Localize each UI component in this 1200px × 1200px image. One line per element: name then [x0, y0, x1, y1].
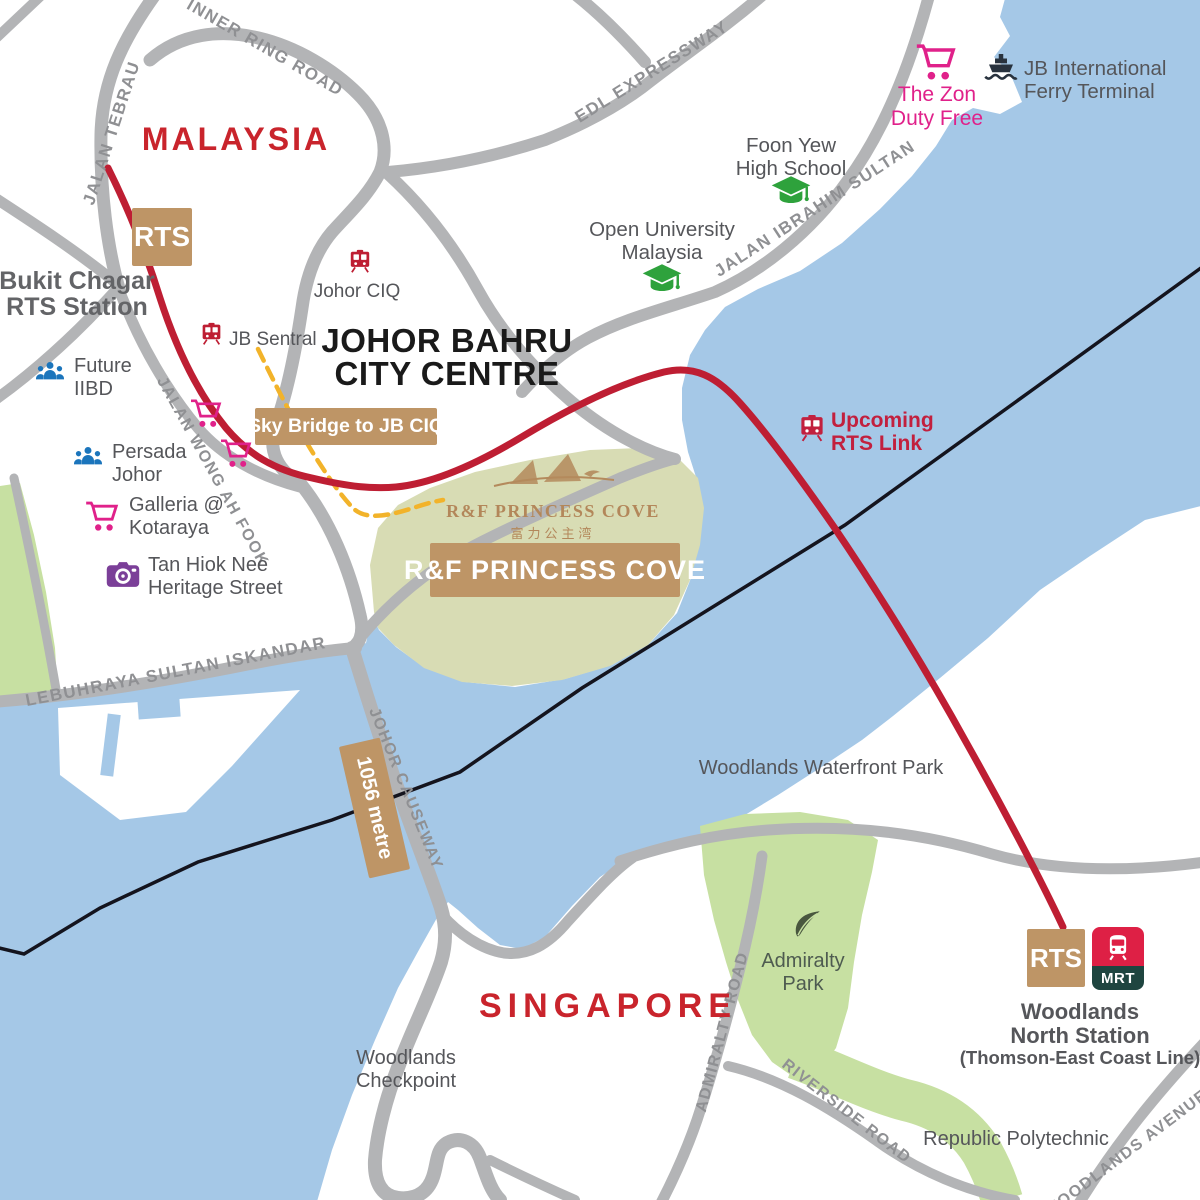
- shopping-cart-icon: [218, 436, 254, 472]
- tan-hiok-nee-label: Tan Hiok Nee Heritage Street: [148, 554, 283, 599]
- upcoming-rts-line2: RTS Link: [831, 432, 934, 455]
- graduation-cap-icon: [770, 174, 812, 210]
- malaysia-label: MALAYSIA: [142, 121, 330, 158]
- admiralty-park-line2: Park: [761, 973, 844, 996]
- future-iibd-line2: IIBD: [74, 378, 132, 401]
- open-university-line2: Malaysia: [589, 241, 735, 264]
- galleria-line1: Galleria @: [129, 494, 224, 517]
- rf-logo-name: R&F PRINCESS COVE: [446, 501, 660, 522]
- people-icon: [34, 358, 66, 390]
- galleria-kotaraya-label: Galleria @ Kotaraya: [129, 494, 224, 539]
- the-zon-line2: Duty Free: [891, 107, 983, 131]
- republic-polytechnic-label: Republic Polytechnic: [923, 1128, 1109, 1151]
- tan-hiok-nee-line1: Tan Hiok Nee: [148, 554, 283, 577]
- woodlands-north-line1: Woodlands: [960, 1000, 1200, 1024]
- tan-hiok-nee-line2: Heritage Street: [148, 577, 283, 600]
- admiralty-park-label: Admiralty Park: [761, 950, 844, 995]
- persada-line1: Persada: [112, 441, 187, 464]
- jb-sentral-label: JB Sentral: [229, 329, 317, 350]
- train-icon: [797, 414, 827, 444]
- open-university-line1: Open University: [589, 218, 735, 241]
- woodlands-north-line3: (Thomson-East Coast Line): [960, 1048, 1200, 1068]
- rf-princess-cove-badge: R&F PRINCESS COVE: [430, 543, 680, 597]
- rts-badge-malaysia: RTS: [132, 208, 192, 266]
- woodlands-north-label: Woodlands North Station (Thomson-East Co…: [960, 1000, 1200, 1067]
- upcoming-rts-line1: Upcoming: [831, 409, 934, 432]
- ferry-terminal-line1: JB International: [1024, 57, 1166, 80]
- mrt-train-icon: [1092, 927, 1144, 966]
- dock-slip-1: [137, 697, 180, 720]
- train-icon: [347, 249, 373, 275]
- future-iibd-label: Future IIBD: [74, 355, 132, 400]
- bukit-chagar-station-label: Bukit Chagar RTS Station: [0, 268, 155, 321]
- woodlands-north-line2: North Station: [960, 1024, 1200, 1048]
- shopping-cart-icon: [83, 498, 121, 536]
- rf-princess-cove-logo-icon: [488, 452, 618, 490]
- shopping-cart-icon: [188, 396, 224, 432]
- persada-line2: Johor: [112, 464, 187, 487]
- foon-yew-line1: Foon Yew: [736, 134, 847, 157]
- rts-badge-singapore: RTS: [1027, 929, 1085, 987]
- sky-bridge-badge: Sky Bridge to JB CIQ: [255, 408, 437, 445]
- the-zon-line1: The Zon: [891, 83, 983, 107]
- leaf-icon: [789, 906, 825, 942]
- city-centre-line2: CITY CENTRE: [321, 357, 572, 390]
- the-zon-label: The Zon Duty Free: [891, 83, 983, 130]
- johor-ciq-label: Johor CIQ: [314, 281, 401, 302]
- train-icon: [199, 322, 224, 347]
- ferry-ship-icon: [983, 51, 1019, 87]
- future-iibd-line1: Future: [74, 355, 132, 378]
- woodlands-checkpoint-label: Woodlands Checkpoint: [356, 1047, 456, 1092]
- ferry-terminal-line2: Ferry Terminal: [1024, 80, 1166, 103]
- upcoming-rts-label: Upcoming RTS Link: [831, 409, 934, 455]
- bukit-chagar-line2: RTS Station: [0, 294, 155, 320]
- admiralty-park-line1: Admiralty: [761, 950, 844, 973]
- people-icon: [72, 443, 104, 475]
- open-university-label: Open University Malaysia: [589, 218, 735, 264]
- shopping-cart-icon: [913, 40, 959, 86]
- transit-map: INNER RING ROAD JALAN TEBRAU EDL EXPRESS…: [0, 0, 1200, 1200]
- woodlands-checkpoint-line2: Checkpoint: [356, 1070, 456, 1093]
- woodlands-waterfront-label: Woodlands Waterfront Park: [699, 757, 944, 780]
- rf-logo-chinese: 富力公主湾: [510, 523, 595, 542]
- graduation-cap-icon: [641, 262, 683, 298]
- woodlands-checkpoint-line1: Woodlands: [356, 1047, 456, 1070]
- ferry-terminal-label: JB International Ferry Terminal: [1024, 57, 1166, 103]
- mrt-badge: MRT: [1092, 927, 1144, 990]
- mrt-badge-text: MRT: [1092, 966, 1144, 990]
- singapore-label: SINGAPORE: [479, 987, 737, 1026]
- camera-icon: [104, 556, 142, 590]
- city-centre-title: JOHOR BAHRU CITY CENTRE: [321, 324, 572, 390]
- city-centre-line1: JOHOR BAHRU: [321, 324, 572, 357]
- galleria-line2: Kotaraya: [129, 517, 224, 540]
- bukit-chagar-line1: Bukit Chagar: [0, 268, 155, 294]
- persada-johor-label: Persada Johor: [112, 441, 187, 486]
